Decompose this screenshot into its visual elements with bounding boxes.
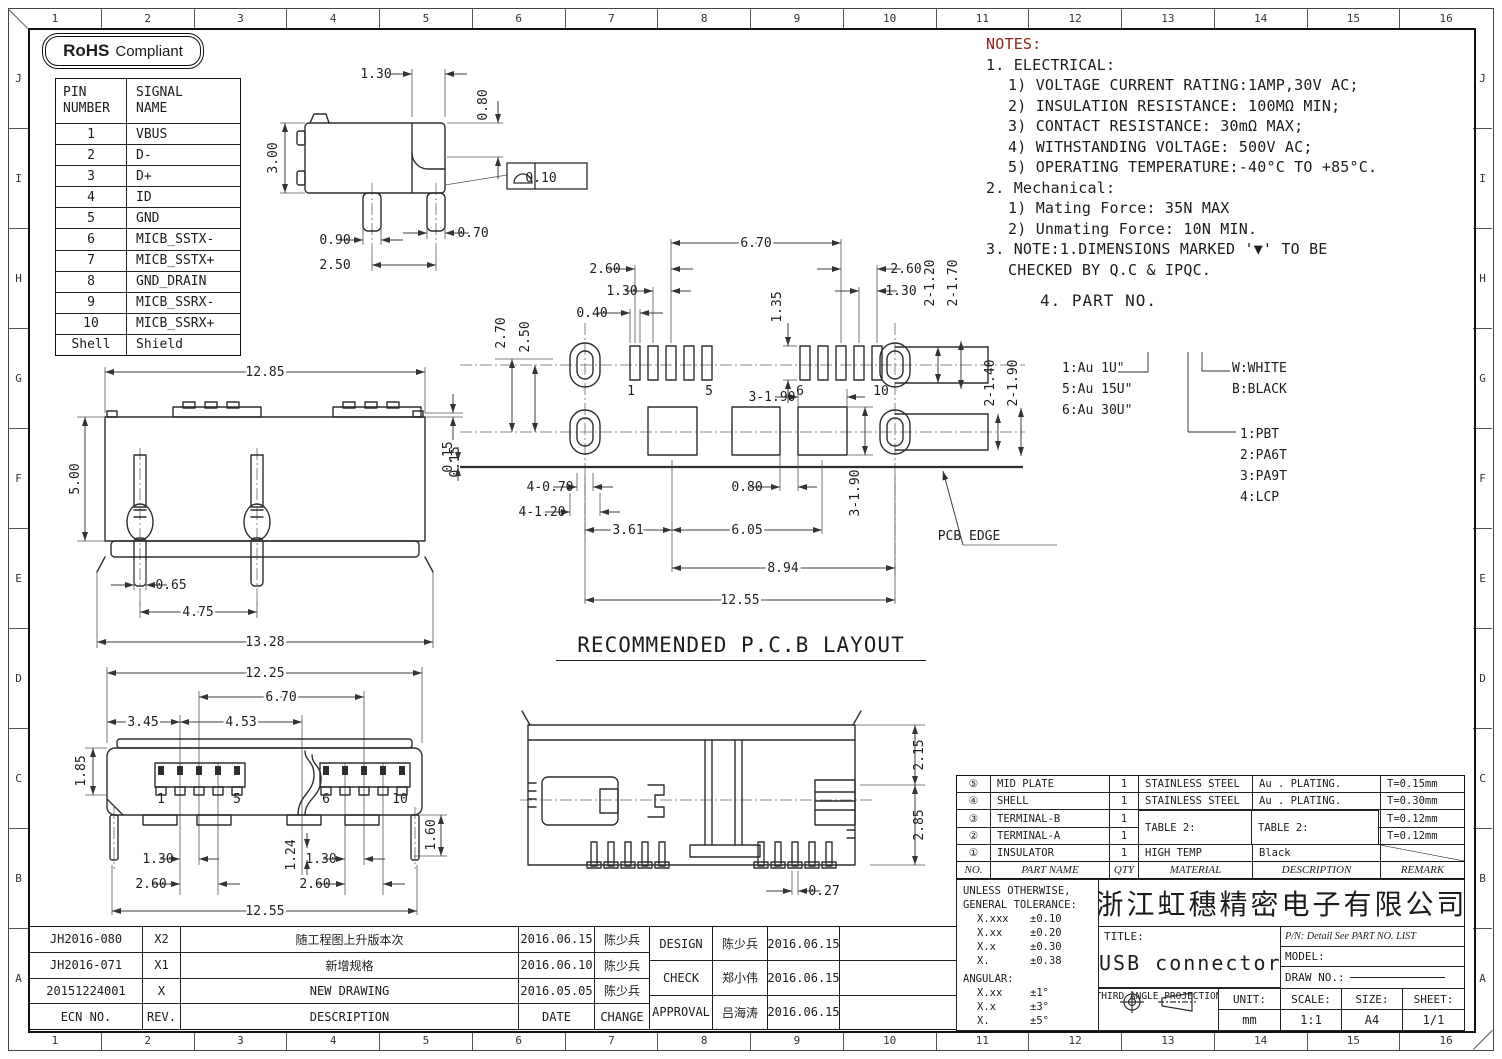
revision-row: JH2016-071X1新增规格2016.06.10陈少兵 <box>30 952 649 978</box>
title-cell: TITLE: USB connector <box>1098 926 1281 988</box>
pin-table-body: 1VBUS2D-3D+4ID5GND6MICB_SSTX-7MICB_SSTX+… <box>56 124 240 355</box>
grid-ref-label: 13 <box>1122 1031 1215 1050</box>
grid-ref-label: 14 <box>1215 1031 1308 1050</box>
table-cell: DESIGN <box>650 927 712 960</box>
table-cell: 8 <box>56 272 126 292</box>
dim-label: 5 <box>705 384 713 399</box>
table-cell: JH2016-080 <box>30 927 142 952</box>
grid-ref-label: 8 <box>658 9 751 28</box>
parts-row: ⑤MID PLATE1STAINLESS STEELAu . PLATING.T… <box>957 776 1464 792</box>
parts-merged-material: TABLE 2: <box>1138 810 1252 845</box>
table-cell: ±1° <box>1030 986 1083 1000</box>
note-line: 1) VOLTAGE CURRENT RATING:1AMP,30V AC; <box>986 75 1472 96</box>
dim-label: PCB EDGE <box>938 529 1001 544</box>
table-cell: DESCRIPTION <box>1252 862 1380 878</box>
dim-label: 2.15 <box>912 739 927 770</box>
table-cell: 2016.06.15 <box>767 927 839 960</box>
approval-row: CHECK郑小伟2016.06.15 <box>650 960 965 994</box>
size-label: SIZE: <box>1342 989 1402 1010</box>
dim-label: 13.28 <box>245 635 284 650</box>
rohs-badge-text: Compliant <box>115 43 183 60</box>
remark-diagonal <box>1380 845 1464 861</box>
pin-table-header: PIN NUMBER SIGNAL NAME <box>56 79 240 124</box>
table-cell: ⑤ <box>957 776 990 792</box>
parts-list-header: NO.PART NAMEQTYMATERIALDESCRIPTIONREMARK <box>956 861 1465 879</box>
table-cell: MICB_SSRX+ <box>126 314 240 334</box>
dim-label: 3-1.90 <box>749 390 796 405</box>
table-cell: T=0.12mm <box>1380 810 1464 826</box>
dim-label: 2.60 <box>890 262 921 277</box>
view-back: 12.855.000.150.654.7513.28 <box>55 360 485 660</box>
unit-label: UNIT: <box>1219 989 1280 1010</box>
angular-label: ANGULAR: <box>963 972 1014 986</box>
table-cell: ① <box>957 845 990 861</box>
table-cell: D- <box>126 145 240 165</box>
rohs-badge: RoHS Compliant <box>42 33 204 69</box>
dim-label: 12.85 <box>245 365 284 380</box>
pin-table-header-signal: SIGNAL NAME <box>126 79 240 123</box>
table-cell <box>839 996 965 1029</box>
grid-ref-label: 11 <box>937 9 1030 28</box>
table-cell: T=0.15mm <box>1380 776 1464 792</box>
table-cell: ID <box>126 187 240 207</box>
table-cell: X. <box>963 1014 1030 1028</box>
pin-signal-table: PIN NUMBER SIGNAL NAME 1VBUS2D-3D+4ID5GN… <box>55 78 241 356</box>
dim-label: 10 <box>392 792 408 807</box>
grid-ref-label: E <box>9 529 28 629</box>
revision-row: JH2016-080X2随工程图上升版本次2016.06.15陈少兵 <box>30 927 649 952</box>
note-line: 5) OPERATING TEMPERATURE:-40°C TO +85°C. <box>986 157 1472 178</box>
parts-header-row: NO.PART NAMEQTYMATERIALDESCRIPTIONREMARK <box>957 862 1464 878</box>
table-cell: X2 <box>142 927 180 952</box>
table-cell: Au . PLATING. <box>1252 793 1380 809</box>
table-cell: MID PLATE <box>990 776 1109 792</box>
grid-ref-label: 2 <box>102 1031 195 1050</box>
dim-label: 2.60 <box>135 877 166 892</box>
dim-label: 1.35 <box>770 291 785 322</box>
grid-ref-label: 16 <box>1400 1031 1492 1050</box>
table-cell: 陈少兵 <box>712 927 767 960</box>
dim-label: 0.40 <box>576 306 607 321</box>
table-cell: 新增规格 <box>180 953 518 978</box>
draw-no-cell: DRAW NO.: <box>1280 966 1465 989</box>
table-cell: DESCRIPTION <box>180 1004 518 1029</box>
tolerance-pair: X.xxx±0.10 <box>963 912 1083 926</box>
model-cell: MODEL: <box>1280 946 1465 967</box>
view-pcb-layout: 6.702.601.300.402.702.501.352.601.302-1.… <box>445 225 1060 635</box>
table-cell: CHECK <box>650 961 712 994</box>
dim-label: 2.50 <box>518 321 533 352</box>
table-cell: 陈少兵 <box>594 927 649 952</box>
table-cell: ±0.38 <box>1030 954 1083 968</box>
grid-ref-label: I <box>9 129 28 229</box>
table-cell: 1 <box>1109 793 1138 809</box>
grid-ref-label: 16 <box>1400 9 1492 28</box>
dim-label: 5 <box>233 792 241 807</box>
table-cell: 郑小伟 <box>712 961 767 994</box>
grid-ref-label: 8 <box>658 1031 751 1050</box>
grid-ref-label: B <box>9 829 28 929</box>
grid-ref-label: A <box>9 929 28 1028</box>
pin-table-row: 8GND_DRAIN <box>56 271 240 292</box>
dim-label: 0.15 <box>441 441 456 472</box>
dim-label: 8.94 <box>767 561 798 576</box>
table-cell: 1 <box>1109 828 1138 844</box>
table-cell: MICB_SSTX+ <box>126 251 240 271</box>
grid-ref-label: J <box>9 29 28 129</box>
part-number-note: P/N: Detail See PART NO. LIST <box>1280 926 1465 947</box>
grid-ref-label: 15 <box>1308 9 1401 28</box>
grid-ref-label: 9 <box>751 1031 844 1050</box>
dim-label: 1.60 <box>424 819 439 850</box>
dim-label: 1.30 <box>142 852 173 867</box>
note-line: 4) WITHSTANDING VOLTAGE: 500V AC; <box>986 137 1472 158</box>
dim-label: 1.30 <box>885 284 916 299</box>
table-cell: ② <box>957 828 990 844</box>
table-cell: ±3° <box>1030 1000 1083 1014</box>
dim-label: 4.75 <box>182 605 213 620</box>
grid-ref-label: 14 <box>1215 9 1308 28</box>
table-cell: SHELL <box>990 793 1109 809</box>
table-cell: Au . PLATING. <box>1252 776 1380 792</box>
tolerance-line1: UNLESS OTHERWISE, <box>963 884 1070 898</box>
grid-ref-label: 10 <box>844 1031 937 1050</box>
size-cell: SIZE: A4 <box>1341 988 1403 1031</box>
table-cell: X.xxx <box>963 912 1030 926</box>
grid-ref-label: 7 <box>566 9 659 28</box>
table-cell: QTY <box>1109 862 1138 878</box>
unit-cell: UNIT: mm <box>1218 988 1281 1031</box>
table-cell: X.xx <box>963 926 1030 940</box>
table-cell: T=0.30mm <box>1380 793 1464 809</box>
dim-label: 6.70 <box>740 236 771 251</box>
dim-label: 3.00 <box>266 142 281 173</box>
draw-no-blank-line <box>1350 977 1445 978</box>
table-cell: MICB_SSTX- <box>126 229 240 249</box>
table-cell: D+ <box>126 166 240 186</box>
dim-label: 6 <box>322 792 330 807</box>
dim-label: 1.85 <box>74 755 89 786</box>
table-cell: 陈少兵 <box>594 979 649 1004</box>
table-cell: 1 <box>1109 845 1138 861</box>
dim-label: 0.90 <box>319 233 350 248</box>
tolerance-pair: X.xx±1° <box>963 986 1083 1000</box>
tolerance-pair: X.x±3° <box>963 1000 1083 1014</box>
dim-label: 1 <box>157 792 165 807</box>
table-cell: MICB_SSRX- <box>126 293 240 313</box>
note-line: 2. Mechanical: <box>986 178 1472 199</box>
approval-row: DESIGN陈少兵2016.06.15 <box>650 927 965 960</box>
grid-ref-label: C <box>9 729 28 829</box>
grid-ref-strip-top: 12345678910111213141516 <box>9 9 1492 28</box>
tolerance-pair: X.±0.38 <box>963 954 1083 968</box>
table-cell: MATERIAL <box>1138 862 1252 878</box>
table-cell: X. <box>963 954 1030 968</box>
grid-ref-label: 4 <box>287 9 380 28</box>
table-cell <box>839 927 965 960</box>
table-cell: REMARK <box>1380 862 1464 878</box>
dim-label: 2.60 <box>299 877 330 892</box>
table-cell: 9 <box>56 293 126 313</box>
table-cell: PART NAME <box>990 862 1109 878</box>
drawing-title: USB connector <box>1099 951 1280 975</box>
table-cell: VBUS <box>126 124 240 144</box>
table-cell: ±0.30 <box>1030 940 1083 954</box>
dim-label: 2-1.20 <box>923 260 938 307</box>
pin-table-row: 10MICB_SSRX+ <box>56 313 240 334</box>
note-line: 1. ELECTRICAL: <box>986 55 1472 76</box>
sheet-cell: SHEET: 1/1 <box>1402 988 1465 1031</box>
table-cell: 2 <box>56 145 126 165</box>
pcb-layout-title: RECOMMENDED P.C.B LAYOUT <box>556 633 926 661</box>
table-cell: 2016.06.15 <box>767 961 839 994</box>
tolerance-pair: X.x±0.30 <box>963 940 1083 954</box>
dim-label: 4-1.20 <box>519 505 566 520</box>
part-no-tree-lines <box>1100 340 1250 510</box>
grid-ref-label: 2 <box>102 9 195 28</box>
table-cell: Shell <box>56 335 126 355</box>
table-cell: STAINLESS STEEL <box>1138 776 1252 792</box>
dim-label: 2.60 <box>589 262 620 277</box>
table-cell: CHANGE <box>594 1004 649 1029</box>
dim-label: 1.30 <box>305 852 336 867</box>
table-cell: 6 <box>56 229 126 249</box>
table-cell: HIGH TEMP <box>1138 845 1252 861</box>
parts-merged-description: TABLE 2: <box>1251 810 1379 845</box>
dim-label: 4-0.70 <box>527 480 574 495</box>
dim-label: 0.80 <box>476 89 491 120</box>
grid-ref-label: 6 <box>473 9 566 28</box>
dim-label: 0.65 <box>155 578 186 593</box>
table-cell: 陈少兵 <box>594 953 649 978</box>
table-cell: 10 <box>56 314 126 334</box>
revision-row: 20151224001XNEW DRAWING2016.05.05陈少兵 <box>30 978 649 1004</box>
dim-label: 6.05 <box>731 523 762 538</box>
grid-ref-label: F <box>9 429 28 529</box>
pin-table-header-pin: PIN NUMBER <box>56 79 126 123</box>
approval-table: DESIGN陈少兵2016.06.15CHECK郑小伟2016.06.15APP… <box>649 926 966 1030</box>
table-cell: 2016.06.15 <box>767 996 839 1029</box>
tolerance-pair: X.±5° <box>963 1014 1083 1028</box>
dim-label: 12.55 <box>720 593 759 608</box>
size-value: A4 <box>1342 1010 1402 1030</box>
table-cell: X1 <box>142 953 180 978</box>
grid-ref-strip-bottom: 12345678910111213141516 <box>9 1031 1492 1050</box>
table-cell: NEW DRAWING <box>180 979 518 1004</box>
dim-label: 10 <box>873 384 889 399</box>
table-cell: ±0.10 <box>1030 912 1083 926</box>
dim-label: 1.30 <box>360 67 391 82</box>
grid-ref-label: 12 <box>1029 9 1122 28</box>
solder-feet <box>587 842 836 868</box>
table-cell: 20151224001 <box>30 979 142 1004</box>
table-cell: 7 <box>56 251 126 271</box>
grid-ref-label: D <box>9 629 28 729</box>
pin-table-row: 3D+ <box>56 165 240 186</box>
company-name: 浙江虹穗精密电子有限公司 <box>1098 879 1465 927</box>
table-cell: 5 <box>56 208 126 228</box>
dim-label: 1.30 <box>606 284 637 299</box>
table-cell: TERMINAL-B <box>990 810 1109 826</box>
view-bottom: 2.152.850.27 <box>520 695 970 910</box>
dim-label: 3-1.90 <box>848 470 863 517</box>
dim-label: 0.10 <box>525 171 556 186</box>
title-label: TITLE: <box>1099 927 1144 943</box>
scale-cell: SCALE: 1:1 <box>1280 988 1342 1031</box>
dim-label: 1 <box>627 384 635 399</box>
pin-table-row: 6MICB_SSTX- <box>56 228 240 249</box>
table-cell: ③ <box>957 810 990 826</box>
table-cell: JH2016-071 <box>30 953 142 978</box>
tolerance-pair: X.xx±0.20 <box>963 926 1083 940</box>
dim-label: 1.24 <box>284 839 299 870</box>
table-cell: T=0.12mm <box>1380 828 1464 844</box>
rohs-badge-bold-text: RoHS <box>63 41 109 61</box>
pin-table-row: 4ID <box>56 186 240 207</box>
table-cell <box>839 961 965 994</box>
dim-label: 3.45 <box>127 715 158 730</box>
dim-label: 2.70 <box>494 317 509 348</box>
dim-label: 3.61 <box>612 523 643 538</box>
dim-label: 6.70 <box>265 690 296 705</box>
scale-label: SCALE: <box>1281 989 1341 1010</box>
grid-ref-label: 13 <box>1122 9 1215 28</box>
revision-table: JH2016-080X2随工程图上升版本次2016.06.15陈少兵JH2016… <box>29 926 650 1030</box>
table-cell: X.x <box>963 1000 1030 1014</box>
grid-ref-label: 11 <box>937 1031 1030 1050</box>
tolerance-block: UNLESS OTHERWISE, GENERAL TOLERANCE: X.x… <box>956 879 1099 1031</box>
grid-ref-label: 7 <box>566 1031 659 1050</box>
dim-label: 4.53 <box>225 715 256 730</box>
table-cell: 3 <box>56 166 126 186</box>
draw-no-label: DRAW NO.: <box>1285 971 1345 984</box>
grid-ref-label: 15 <box>1308 1031 1401 1050</box>
table-cell: GND <box>126 208 240 228</box>
pin-table-row: 2D- <box>56 144 240 165</box>
grid-ref-label: 3 <box>195 9 288 28</box>
table-cell: DATE <box>518 1004 594 1029</box>
table-cell: 吕海涛 <box>712 996 767 1029</box>
pin-table-row: ShellShield <box>56 334 240 355</box>
table-cell: NO. <box>957 862 990 878</box>
table-cell: 随工程图上升版本次 <box>180 927 518 952</box>
pin-table-row: 5GND <box>56 207 240 228</box>
approval-row: APPROVAL吕海涛2016.06.15 <box>650 995 965 1029</box>
angular-tolerance-pairs: X.xx±1°X.x±3°X.±5° <box>963 986 1083 1028</box>
dim-label: 2.85 <box>912 809 927 840</box>
table-cell: X.x <box>963 940 1030 954</box>
table-cell: X <box>142 979 180 1004</box>
grid-ref-label: 9 <box>751 9 844 28</box>
table-cell: 2016.06.10 <box>518 953 594 978</box>
table-cell: GND_DRAIN <box>126 272 240 292</box>
scale-value: 1:1 <box>1281 1010 1341 1030</box>
dim-label: 2-1.70 <box>946 260 961 307</box>
grid-ref-label: H <box>9 229 28 329</box>
sheet-value: 1/1 <box>1403 1010 1464 1030</box>
dim-label: 2-1.40 <box>983 360 998 407</box>
dim-label: 12.25 <box>245 666 284 681</box>
grid-ref-label: 12 <box>1029 1031 1122 1050</box>
table-cell: APPROVAL <box>650 996 712 1029</box>
dim-label: 12.55 <box>245 904 284 919</box>
sheet-label: SHEET: <box>1403 989 1464 1010</box>
grid-ref-label: 5 <box>380 1031 473 1050</box>
table-cell: INSULATOR <box>990 845 1109 861</box>
table-cell: 1 <box>56 124 126 144</box>
dim-label: 0.27 <box>808 884 839 899</box>
table-cell: Black <box>1252 845 1380 861</box>
table-cell: 1 <box>1109 776 1138 792</box>
grid-ref-label: 4 <box>287 1031 380 1050</box>
grid-ref-strip-left: JIHGFEDCBA <box>9 29 28 1028</box>
note-line: 1) Mating Force: 35N MAX <box>986 198 1472 219</box>
dim-label: 2-1.90 <box>1006 360 1021 407</box>
note-line: 3) CONTACT RESISTANCE: 30mΩ MAX; <box>986 116 1472 137</box>
revision-row: ECN NO.REV.DESCRIPTIONDATECHANGE <box>30 1003 649 1029</box>
table-cell: ±0.20 <box>1030 926 1083 940</box>
grid-ref-label: 1 <box>9 1031 102 1050</box>
tolerance-line2: GENERAL TOLERANCE: <box>963 898 1077 912</box>
grid-ref-label: 3 <box>195 1031 288 1050</box>
grid-ref-label: 6 <box>473 1031 566 1050</box>
third-angle-symbol <box>1114 989 1204 1015</box>
drawing-sheet: 12345678910111213141516 1234567891011121… <box>0 0 1502 1059</box>
general-tolerance-pairs: X.xxx±0.10X.xx±0.20X.x±0.30X.±0.38 <box>963 912 1083 968</box>
table-cell: X.xx <box>963 986 1030 1000</box>
view-front: 12.256.703.454.531.851.601.302.601.241.3… <box>55 655 485 935</box>
grid-ref-label: G <box>9 329 28 429</box>
dim-label: 5.00 <box>68 463 83 494</box>
dim-label: 6 <box>796 384 804 399</box>
table-cell: TERMINAL-A <box>990 828 1109 844</box>
pin-table-row: 7MICB_SSTX+ <box>56 250 240 271</box>
pin-table-row: 1VBUS <box>56 124 240 144</box>
dim-label: 2.50 <box>319 258 350 273</box>
table-cell: STAINLESS STEEL <box>1138 793 1252 809</box>
table-cell: ±5° <box>1030 1014 1083 1028</box>
table-cell: Shield <box>126 335 240 355</box>
pin-table-row: 9MICB_SSRX- <box>56 292 240 313</box>
unit-value: mm <box>1219 1010 1280 1030</box>
table-cell: REV. <box>142 1004 180 1029</box>
grid-ref-label: 10 <box>844 9 937 28</box>
projection-cell: THIRD ANGLE PROJECTION <box>1098 988 1219 1031</box>
notes-title: NOTES: <box>986 34 1472 55</box>
grid-ref-label: 5 <box>380 9 473 28</box>
table-cell: 2016.06.15 <box>518 927 594 952</box>
table-cell: ECN NO. <box>30 1004 142 1029</box>
dim-label: 0.80 <box>731 480 762 495</box>
table-cell: 1 <box>1109 810 1138 826</box>
table-cell: ④ <box>957 793 990 809</box>
table-cell: 4 <box>56 187 126 207</box>
table-cell: 2016.05.05 <box>518 979 594 1004</box>
parts-row: ④SHELL1STAINLESS STEELAu . PLATING.T=0.3… <box>957 792 1464 809</box>
note-line: 2) INSULATION RESISTANCE: 100MΩ MIN; <box>986 96 1472 117</box>
